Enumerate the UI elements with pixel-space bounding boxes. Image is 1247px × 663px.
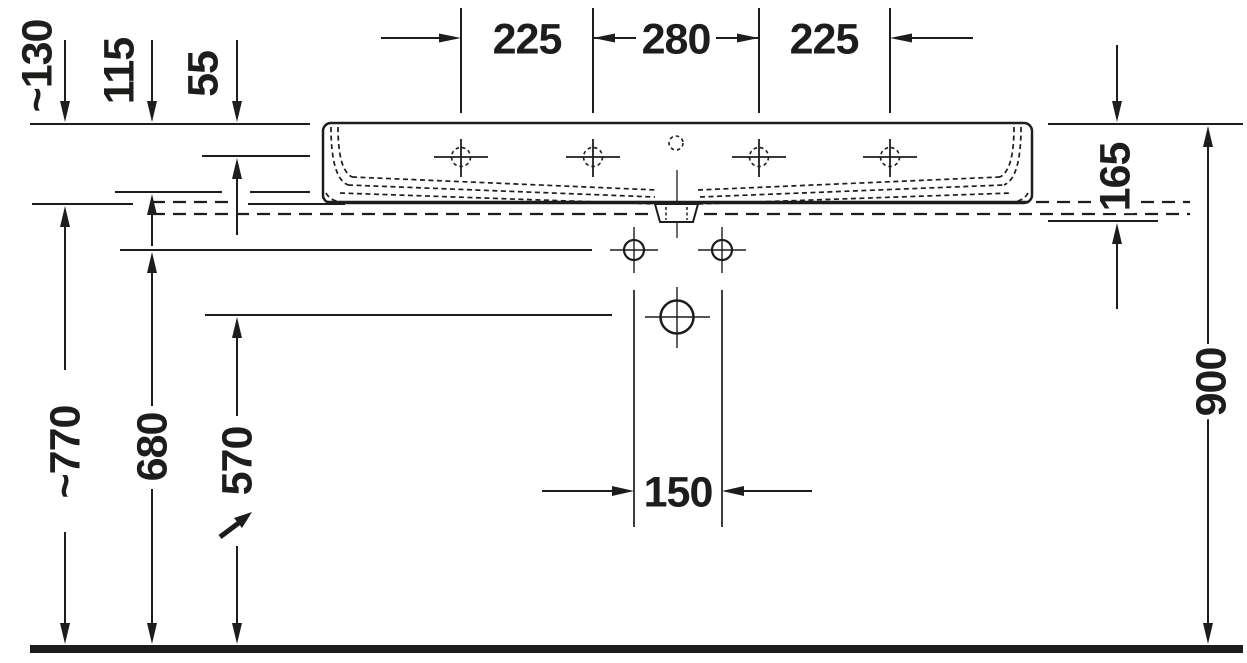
dim-label-approx-770: ~770 [41,405,89,498]
floor-line [30,645,1243,653]
drawing-page: 225 280 225 ~130 115 55 [0,0,1247,663]
wall-fixing-and-outlet [610,227,746,348]
arrowhead-down-icon [60,101,70,122]
arrowhead-down-icon [60,623,70,644]
arrowhead-left-icon [890,34,912,43]
dim-label-680: 680 [128,413,176,482]
arrowhead-left-icon [593,34,615,43]
arrowhead-up-icon [1112,223,1122,244]
drain-tailpiece [655,204,698,222]
dim-label-55: 55 [179,51,227,97]
arrowhead-up-icon [1203,126,1213,147]
arrowhead-right-icon [737,34,759,43]
dim-label-tap-spacing-right: 225 [790,15,859,63]
arrowhead-right-icon [439,34,461,43]
dim-label-150: 150 [644,468,713,516]
arrowhead-down-icon [1203,623,1213,644]
arrowhead-right-icon [612,486,634,496]
dim-label-570: 570 [213,427,261,496]
arrowhead-up-icon [147,194,157,215]
arrowhead-down-icon [147,101,157,122]
arrowhead-down-icon [1112,101,1122,122]
arrowhead-up-icon [60,206,70,227]
dim-label-165: 165 [1091,143,1139,212]
arrowhead-down-icon [232,101,242,122]
dim-label-tap-spacing-center: 280 [642,15,711,63]
arrowhead-left-icon [722,486,744,496]
arrowhead-down-icon [232,623,242,644]
arrowhead-down-icon [147,623,157,644]
dim-label-tap-spacing-left: 225 [493,15,562,63]
arrowhead-up-icon [147,252,157,273]
right-dimensions [1048,45,1243,644]
arrowhead-up-icon [232,158,242,179]
arrowhead-up-icon [232,317,242,338]
adjustable-height-arrow-shaft [220,522,240,537]
dim-label-900: 900 [1187,348,1235,417]
washbasin-body [323,123,1032,238]
technical-drawing-canvas: 225 280 225 ~130 115 55 [0,0,1247,663]
dim-label-115: 115 [95,38,143,104]
dim-label-approx-130: ~130 [13,19,61,112]
